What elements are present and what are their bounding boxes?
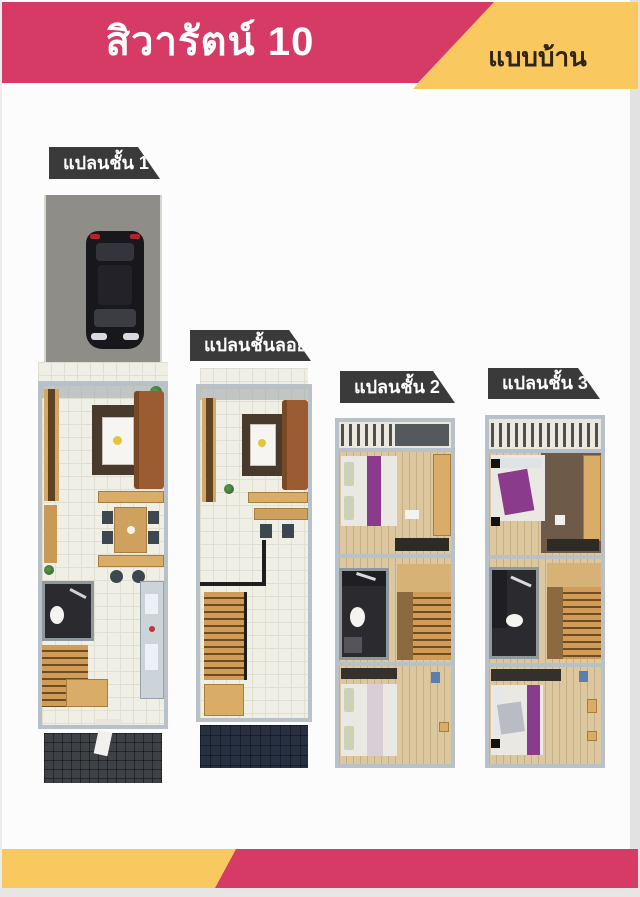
sofa — [134, 391, 164, 489]
bed-runner — [527, 685, 540, 755]
car-headlight-right — [123, 333, 139, 340]
bathroom — [42, 581, 94, 641]
staircase — [563, 587, 601, 659]
vanity — [342, 571, 386, 586]
mezzanine-railing — [262, 540, 266, 586]
void-below — [200, 725, 308, 768]
driveway — [44, 195, 162, 362]
car-roof — [98, 265, 132, 305]
page-edge-right — [630, 0, 640, 897]
stair-hall — [397, 564, 451, 660]
counter — [248, 492, 308, 503]
backyard — [44, 733, 162, 783]
pillow — [344, 726, 354, 750]
pillow — [344, 688, 354, 712]
balcony-railing — [341, 424, 393, 446]
vanity — [492, 570, 507, 628]
bar-stool — [110, 570, 123, 583]
bed-second — [341, 684, 397, 756]
side-table — [439, 722, 449, 732]
stool — [260, 524, 272, 538]
table-decor — [258, 439, 266, 447]
wall-sconce — [491, 517, 500, 526]
footer-pink-banner — [215, 849, 638, 888]
wardrobe — [341, 668, 397, 679]
stove-dot — [149, 626, 155, 632]
front-patio — [38, 362, 168, 381]
floorplan-floor-3 — [485, 415, 605, 770]
dining-chair — [148, 511, 159, 524]
wardrobe — [491, 669, 561, 681]
side-table — [587, 731, 597, 741]
plant-icon — [44, 565, 54, 575]
tv-cabinet — [202, 398, 216, 502]
floor-3-interior — [485, 415, 605, 768]
storage-cabinet — [204, 684, 244, 716]
bed-blanket — [498, 469, 535, 516]
car-rear-window — [96, 243, 134, 261]
back-door-gap — [96, 719, 122, 725]
bathroom — [489, 567, 539, 659]
wall-unit-blue — [579, 671, 588, 682]
label-floor-3: แปลนชั้น 3 — [488, 368, 600, 399]
sink — [145, 644, 158, 670]
bowl-icon — [127, 526, 135, 534]
wall — [489, 555, 601, 559]
brochure-page: สิวารัตน์ 10 แบบบ้าน แปลนชั้น 1 แปลนชั้น… — [0, 0, 640, 897]
page-edge-bottom — [0, 888, 640, 897]
label-floor-1: แปลนชั้น 1 — [49, 147, 160, 179]
floorplan-mezzanine — [196, 368, 312, 768]
bed-blanket — [497, 701, 525, 734]
side-table — [587, 699, 597, 713]
sink — [145, 594, 158, 614]
toilet-icon — [50, 606, 64, 624]
label-floor-2: แปลนชั้น 2 — [340, 371, 455, 403]
shower-rail — [69, 588, 86, 599]
floorplan-floor-1 — [38, 195, 168, 783]
desk — [433, 454, 451, 536]
bed-master — [341, 456, 397, 526]
sofa — [282, 400, 308, 490]
stair-rail-side — [397, 592, 413, 660]
front-ledge — [200, 368, 308, 384]
floorplan-floor-2 — [335, 418, 455, 770]
bathroom — [339, 568, 389, 660]
counter-top — [254, 508, 308, 520]
floor-mat — [405, 510, 419, 519]
car — [86, 231, 144, 349]
wall-shadow — [200, 388, 308, 400]
pillow — [344, 496, 354, 520]
mezzanine-railing — [200, 582, 264, 586]
label-mezzanine: แปลนชั้นลอย — [190, 330, 311, 361]
coffee-table — [250, 424, 276, 466]
balcony-railing — [491, 423, 599, 447]
desk — [583, 455, 601, 541]
tv-console — [395, 538, 449, 551]
dining-chair — [148, 531, 159, 544]
plant-icon — [224, 484, 234, 494]
breakfast-bar — [98, 555, 164, 567]
staircase — [204, 592, 244, 680]
mezzanine-interior — [196, 384, 312, 722]
shower-tray — [344, 637, 362, 653]
stair-railing — [244, 592, 247, 680]
kitchen-counter — [140, 581, 164, 699]
staircase — [413, 592, 451, 660]
back-door-leaf — [94, 730, 113, 756]
storage-cabinet — [66, 679, 108, 707]
pillow — [495, 458, 541, 468]
tv-console — [547, 539, 599, 551]
toilet-icon — [350, 607, 365, 627]
kitchen-island — [98, 491, 164, 503]
balcony — [489, 419, 601, 449]
floor-2-interior — [335, 418, 455, 768]
dining-chair — [102, 511, 113, 524]
wall — [339, 448, 451, 452]
wall — [339, 554, 451, 558]
table-decor — [113, 436, 122, 445]
car-taillight-right — [130, 234, 140, 239]
wall — [339, 662, 451, 666]
page-edge-left — [0, 0, 2, 897]
dining-chair — [102, 531, 113, 544]
dining-table — [114, 507, 147, 553]
balcony-slab — [395, 424, 449, 446]
pillow — [344, 462, 354, 486]
wall-sconce — [491, 459, 500, 468]
car-taillight-left — [90, 234, 100, 239]
page-title: สิวารัตน์ 10 — [55, 16, 365, 68]
wall-sconce — [491, 739, 500, 748]
car-windshield — [94, 309, 136, 327]
coffee-table — [102, 417, 134, 465]
footer-yellow-banner — [2, 849, 236, 888]
floor-1-interior — [38, 381, 168, 729]
bed-runner — [367, 456, 381, 526]
balcony — [339, 422, 451, 448]
tv-cabinet — [44, 389, 59, 501]
header-tab-label: แบบบ้าน — [455, 40, 620, 74]
car-headlight-left — [91, 333, 107, 340]
toilet-icon — [506, 614, 523, 627]
stair-hall — [547, 563, 601, 659]
wall — [489, 663, 601, 667]
wall-unit-blue — [431, 672, 440, 683]
stair-rail-side — [547, 587, 563, 659]
sideboard — [44, 505, 57, 563]
bed-runner — [367, 684, 383, 756]
floor-mat — [555, 515, 565, 525]
stool — [282, 524, 294, 538]
vanity-highlight — [510, 576, 531, 588]
